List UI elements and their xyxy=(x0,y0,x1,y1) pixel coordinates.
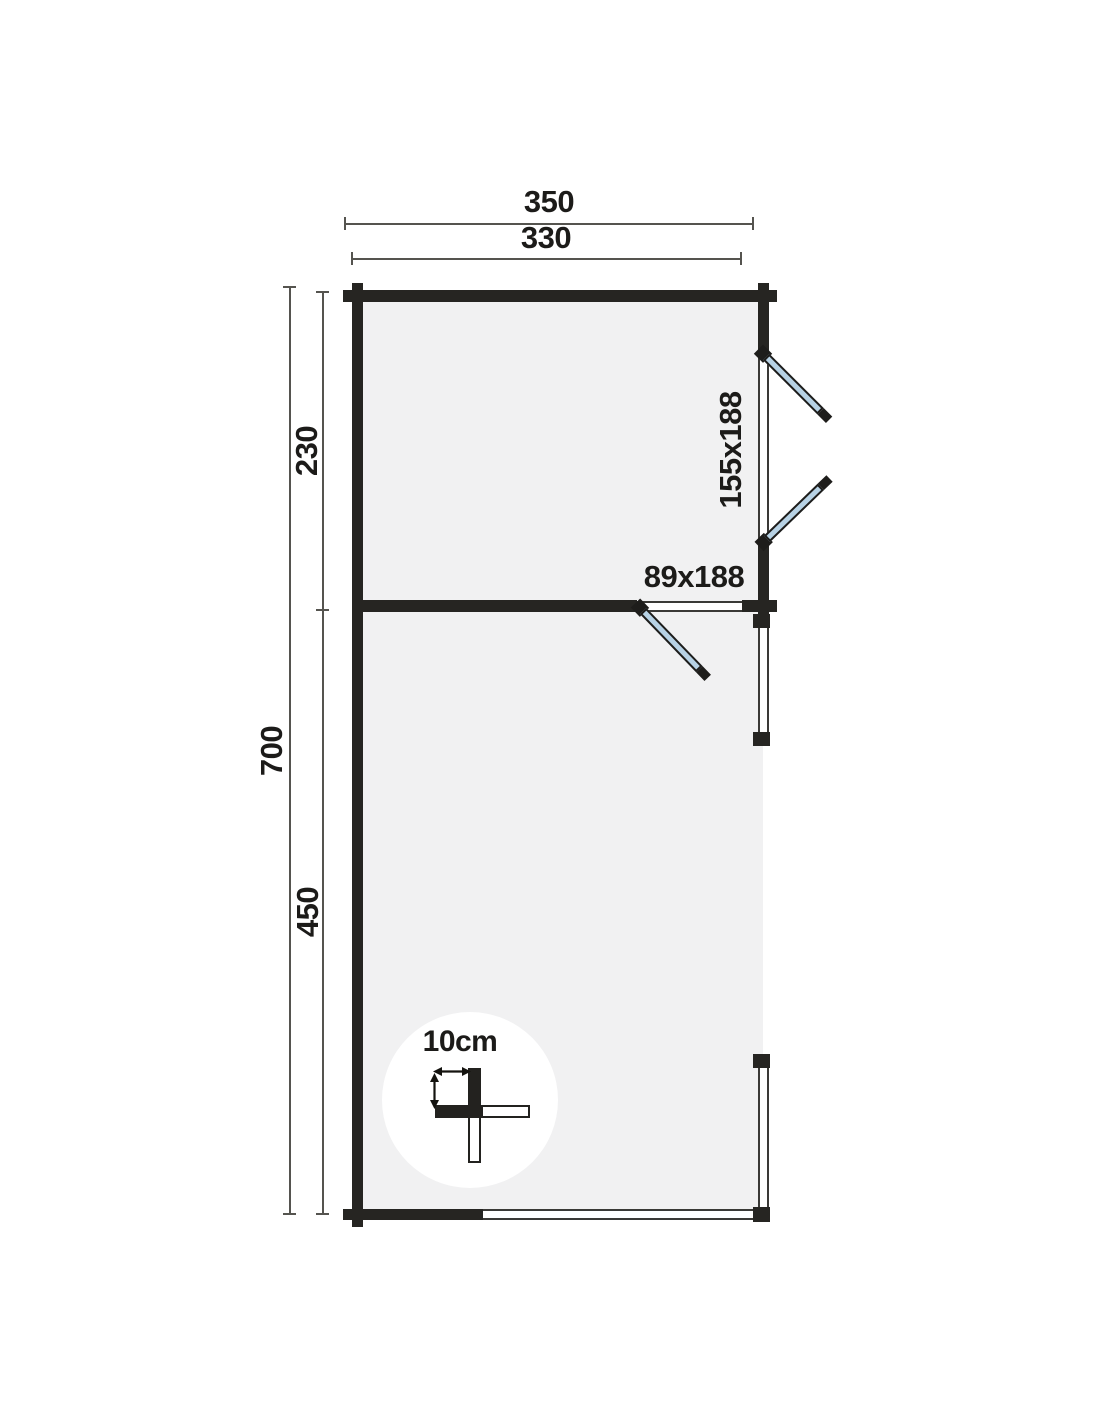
window-opening xyxy=(758,352,769,545)
double-arrow-vertical-icon xyxy=(428,1073,441,1109)
railing-right-upper xyxy=(758,628,769,733)
wall-right-top-segment xyxy=(758,283,769,352)
door-size-label: 89x188 xyxy=(644,559,744,595)
dim-tick xyxy=(344,217,346,230)
dim-tick xyxy=(316,291,329,293)
post-corner-bottom-right xyxy=(753,1207,770,1222)
dim-label-room2-depth: 450 xyxy=(290,887,326,937)
dim-tick xyxy=(316,609,329,611)
sash-cap xyxy=(817,408,832,423)
dim-tick xyxy=(283,1213,296,1215)
dim-tick xyxy=(740,252,742,265)
dim-label-overall-depth: 700 xyxy=(254,726,290,776)
dim-label-overall-width: 350 xyxy=(524,184,574,220)
railing-bottom xyxy=(483,1209,753,1220)
floor-plan-canvas: 350 330 700 230 450 155x188 89x188 10cm xyxy=(0,0,1100,1422)
wall-profile-hollow-vertical xyxy=(468,1112,481,1163)
post-right-3 xyxy=(753,1054,770,1068)
sash-glass xyxy=(763,354,824,415)
dim-line-inner-width xyxy=(352,258,741,260)
dim-label-inner-width: 330 xyxy=(521,220,571,256)
dim-label-room1-depth: 230 xyxy=(289,426,325,476)
sash-glass xyxy=(764,484,824,543)
dim-tick xyxy=(752,217,754,230)
wall-profile-solid-horizontal xyxy=(435,1105,481,1118)
wall-middle-right-stub xyxy=(742,600,777,612)
wall-profile-hollow-horizontal xyxy=(481,1105,530,1118)
wall-bottom xyxy=(343,1209,483,1220)
wall-left xyxy=(352,283,363,1227)
wall-top xyxy=(343,290,777,302)
door-opening xyxy=(637,601,742,612)
railing-right-lower xyxy=(758,1068,769,1207)
dim-tick xyxy=(316,1213,329,1215)
scale-label: 10cm xyxy=(423,1025,498,1059)
post-right-1 xyxy=(753,614,770,628)
window-size-label: 155x188 xyxy=(713,391,749,508)
dim-tick xyxy=(351,252,353,265)
dim-tick xyxy=(283,286,296,288)
wall-middle-left-segment xyxy=(352,600,637,612)
post-right-2 xyxy=(753,732,770,746)
